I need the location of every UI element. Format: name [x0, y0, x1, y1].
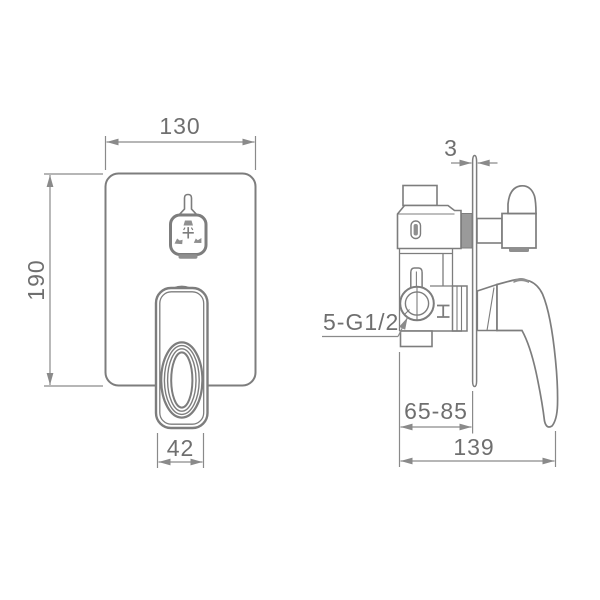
dim-plate-thickness: 3 [444, 135, 497, 163]
adjuster-symbol [437, 306, 450, 318]
label-inlet-thread: 5-G1/2 [322, 309, 408, 337]
inlet-thread-value: 5-G1/2 [323, 309, 399, 335]
handle-lever-side [497, 279, 558, 427]
cartridge-sleeve [453, 286, 468, 331]
handle-width-value: 42 [167, 435, 195, 461]
lever-handle-front [156, 286, 208, 428]
handle-hub-side [477, 285, 497, 331]
valve-body [398, 186, 473, 347]
valve-top-port [403, 186, 437, 206]
wall-plate-side [473, 156, 477, 387]
plus-icon: + [181, 220, 194, 246]
diverter-tab-side [509, 248, 529, 252]
mixer-valve-technical-drawing: + 130 190 [0, 0, 600, 600]
diverter-cap-side [508, 186, 536, 214]
cartridge-housing [398, 206, 462, 249]
front-view: + 130 190 [23, 113, 256, 468]
dim-overall-depth: 139 [401, 431, 556, 467]
diverter-stem-side [477, 219, 502, 244]
drawing-canvas: + 130 190 [0, 0, 600, 600]
diverter-knob-side [477, 186, 536, 252]
valve-bottom-port [401, 331, 433, 347]
plate-height-value: 190 [23, 259, 49, 300]
dim-plate-width: 130 [106, 113, 256, 170]
plate-width-value: 130 [159, 113, 200, 139]
diverter-body-side [502, 214, 536, 249]
side-view: 3 5-G1/2 65-85 139 [322, 135, 558, 467]
gasket-seal [462, 214, 473, 249]
overall-depth-value: 139 [453, 434, 494, 460]
dim-handle-width: 42 [158, 433, 204, 468]
lever-handle-side [477, 278, 557, 427]
plate-thickness-value: 3 [444, 135, 458, 161]
mounting-depth-value: 65-85 [404, 398, 468, 424]
diverter-bottom-tab [179, 254, 198, 259]
dim-plate-height: 190 [23, 174, 103, 386]
